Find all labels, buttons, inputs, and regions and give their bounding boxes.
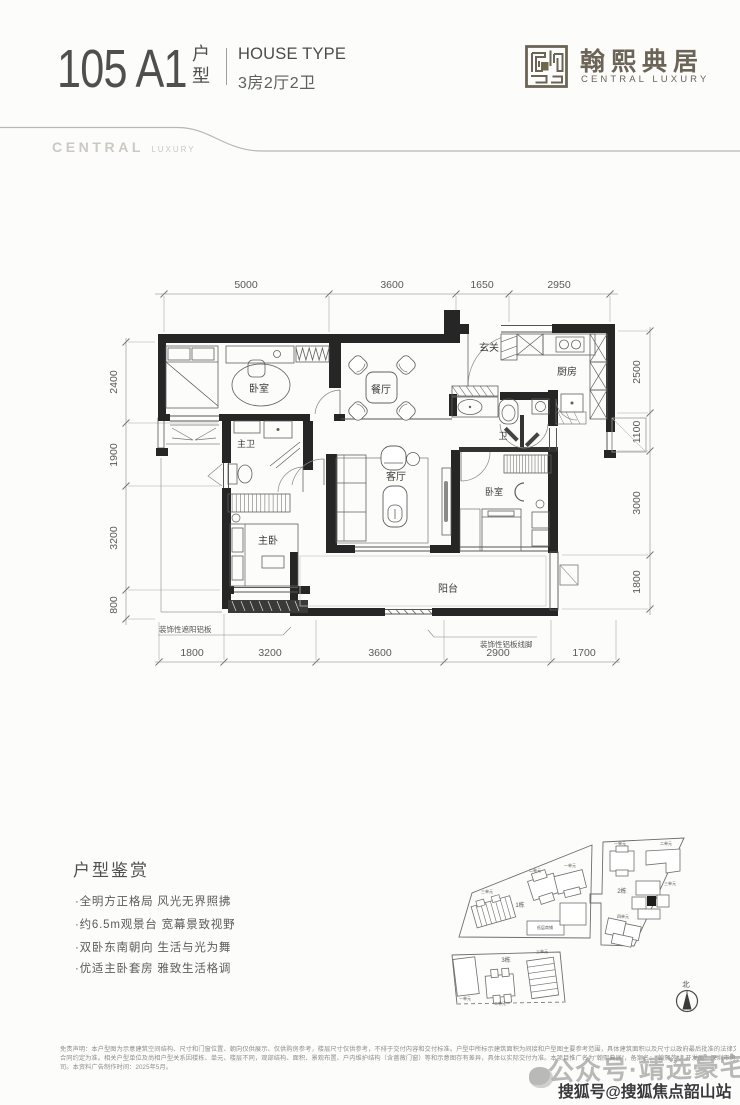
svg-text:800: 800	[108, 596, 120, 614]
svg-text:3600: 3600	[380, 279, 404, 291]
svg-text:2栋: 2栋	[617, 887, 626, 895]
svg-text:2500: 2500	[631, 360, 643, 384]
svg-text:3600: 3600	[368, 647, 392, 659]
svg-text:卧室: 卧室	[249, 382, 269, 395]
svg-text:1650: 1650	[470, 279, 494, 291]
svg-text:3200: 3200	[258, 647, 282, 659]
svg-text:1900: 1900	[108, 443, 120, 467]
svg-text:客厅: 客厅	[386, 470, 406, 483]
svg-text:1800: 1800	[180, 647, 204, 659]
svg-text:北: 北	[682, 980, 690, 989]
svg-text:玄关: 玄关	[479, 341, 499, 354]
svg-text:一单元: 一单元	[459, 995, 471, 1001]
svg-text:三单元: 三单元	[481, 888, 493, 894]
svg-text:三单元: 三单元	[536, 948, 548, 954]
svg-text:二单元: 二单元	[529, 867, 541, 873]
svg-text:一单元: 一单元	[564, 862, 576, 868]
svg-text:1800: 1800	[631, 570, 643, 594]
svg-text:1700: 1700	[572, 647, 596, 659]
svg-text:阳台: 阳台	[438, 582, 458, 595]
svg-text:四单元: 四单元	[617, 913, 629, 919]
svg-text:2400: 2400	[108, 370, 120, 394]
svg-text:餐厅: 餐厅	[371, 383, 391, 396]
svg-text:厨房: 厨房	[557, 365, 577, 378]
svg-text:装饰性遮阳铝板: 装饰性遮阳铝板	[159, 624, 212, 634]
svg-text:主卧: 主卧	[258, 534, 278, 547]
svg-text:二单元: 二单元	[494, 1000, 506, 1006]
svg-text:卧室: 卧室	[485, 486, 503, 497]
svg-text:3000: 3000	[631, 491, 643, 515]
svg-text:5000: 5000	[234, 279, 258, 291]
svg-text:主卫: 主卫	[237, 438, 255, 449]
svg-text:二单元: 二单元	[660, 840, 672, 846]
svg-text:2950: 2950	[547, 279, 571, 291]
svg-text:装饰性铝板线脚: 装饰性铝板线脚	[480, 639, 533, 649]
svg-text:低层商铺: 低层商铺	[537, 924, 553, 930]
svg-text:1100: 1100	[631, 421, 643, 444]
svg-text:三单元: 三单元	[664, 880, 676, 886]
svg-text:一单元: 一单元	[614, 840, 626, 846]
svg-text:3栋: 3栋	[501, 956, 510, 964]
svg-text:卫: 卫	[498, 431, 507, 441]
svg-text:3200: 3200	[108, 526, 120, 550]
svg-text:1栋: 1栋	[515, 901, 524, 909]
